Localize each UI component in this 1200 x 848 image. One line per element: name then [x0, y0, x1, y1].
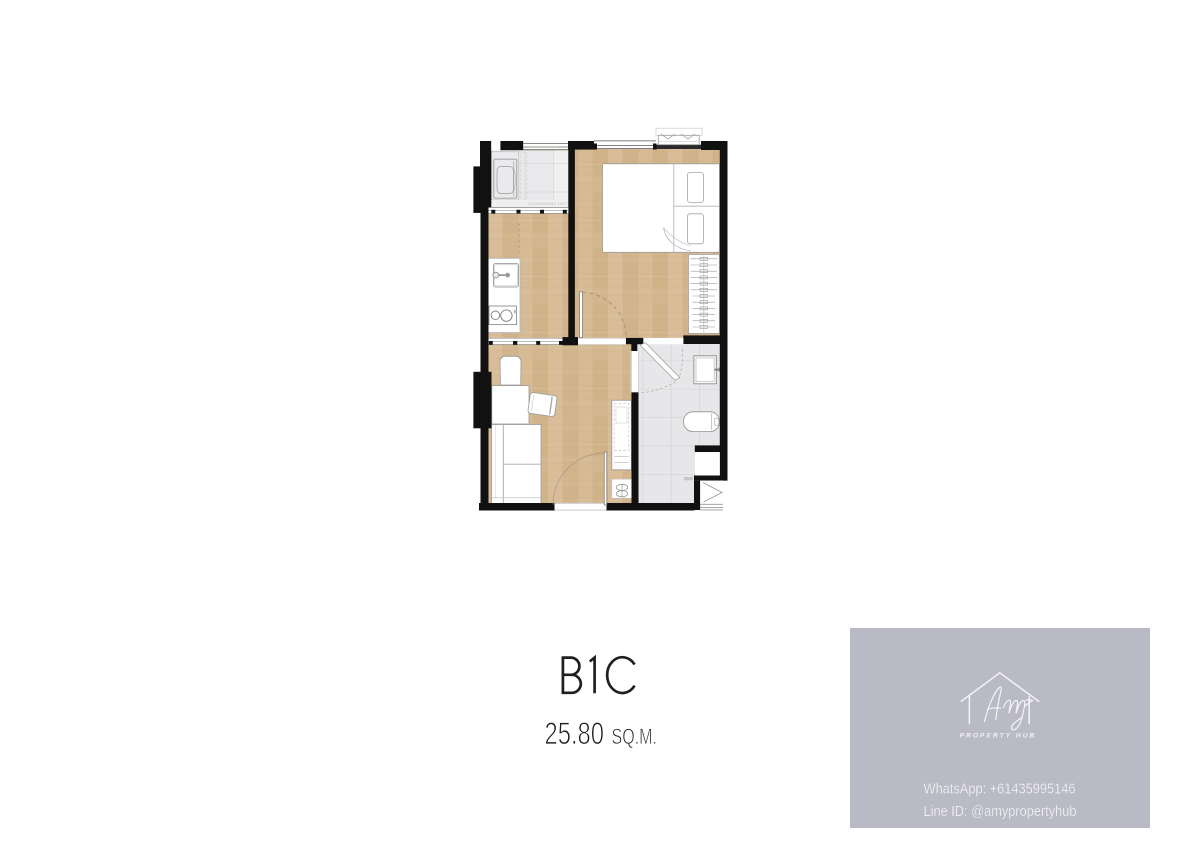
svg-text:WhatsApp: +61435995146: WhatsApp: +61435995146 — [924, 781, 1076, 797]
svg-text:Line ID: @amypropertyhub: Line ID: @amypropertyhub — [924, 804, 1077, 820]
svg-text:PROPERTY HUB: PROPERTY HUB — [960, 733, 1037, 740]
